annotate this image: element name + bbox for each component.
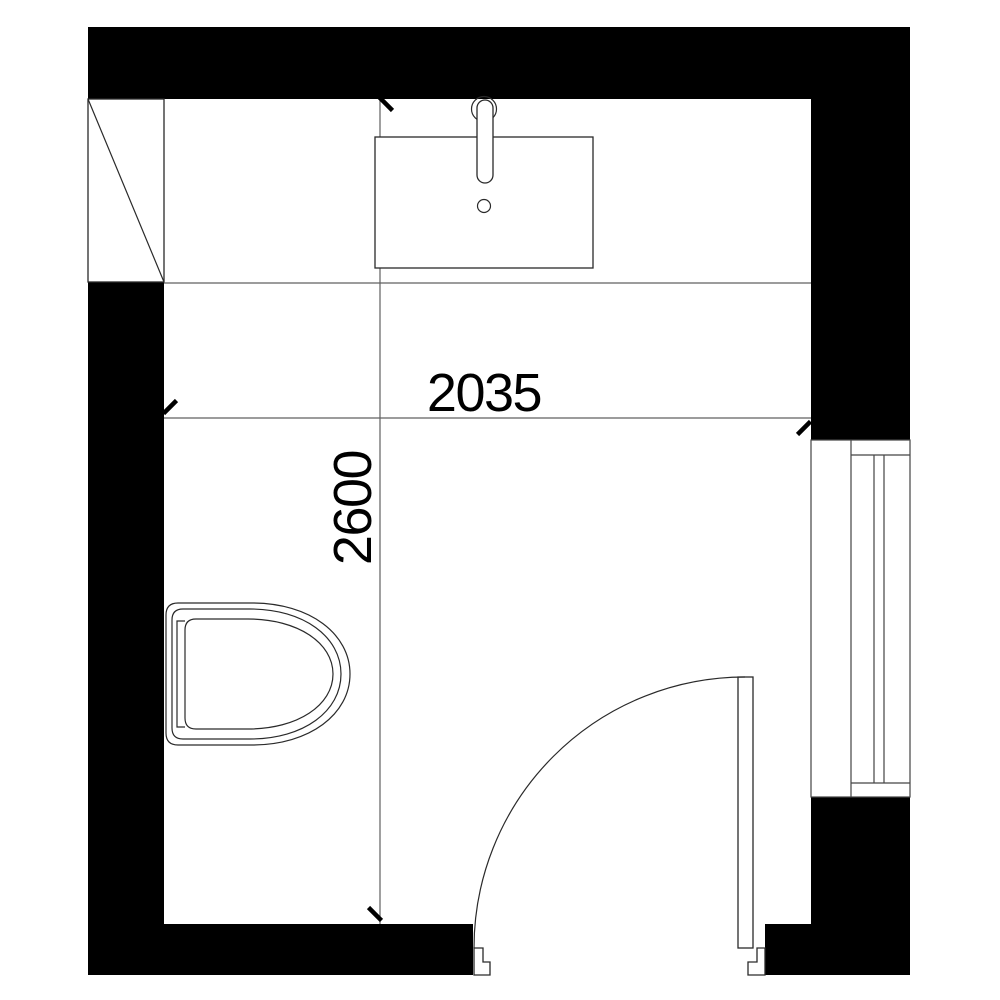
wall-bottom-right <box>765 924 910 975</box>
toilet <box>166 603 350 745</box>
tick-top <box>380 98 393 111</box>
faucet-spout-icon <box>477 100 493 183</box>
width-dimension-label: 2035 <box>427 363 541 423</box>
door-leaf-icon <box>738 677 753 948</box>
tick-left <box>164 401 177 414</box>
washbasin <box>375 97 593 269</box>
wall-top <box>88 27 910 99</box>
toilet-seat-hinge <box>177 621 185 727</box>
floor-plan: 2035 2600 <box>0 0 1000 1000</box>
wall-bottom-left <box>88 924 473 975</box>
door-jamb-right <box>748 948 765 975</box>
toilet-rim-icon <box>172 609 341 739</box>
floor-plan-drawing: 2035 2600 <box>0 0 1000 1000</box>
wall-right-upper <box>811 27 910 440</box>
tick-right <box>798 422 811 435</box>
door-swing-arc <box>474 677 745 948</box>
dimension-labels: 2035 2600 <box>323 363 541 565</box>
toilet-outer-icon <box>166 603 350 745</box>
door <box>474 677 765 975</box>
toilet-bowl-icon <box>185 619 333 729</box>
height-dimension-label: 2600 <box>323 451 383 565</box>
door-jamb-left <box>474 948 490 975</box>
window-frame-icon <box>811 440 910 797</box>
window <box>811 440 910 797</box>
duct-shaft <box>88 99 164 282</box>
wall-left <box>88 282 164 975</box>
